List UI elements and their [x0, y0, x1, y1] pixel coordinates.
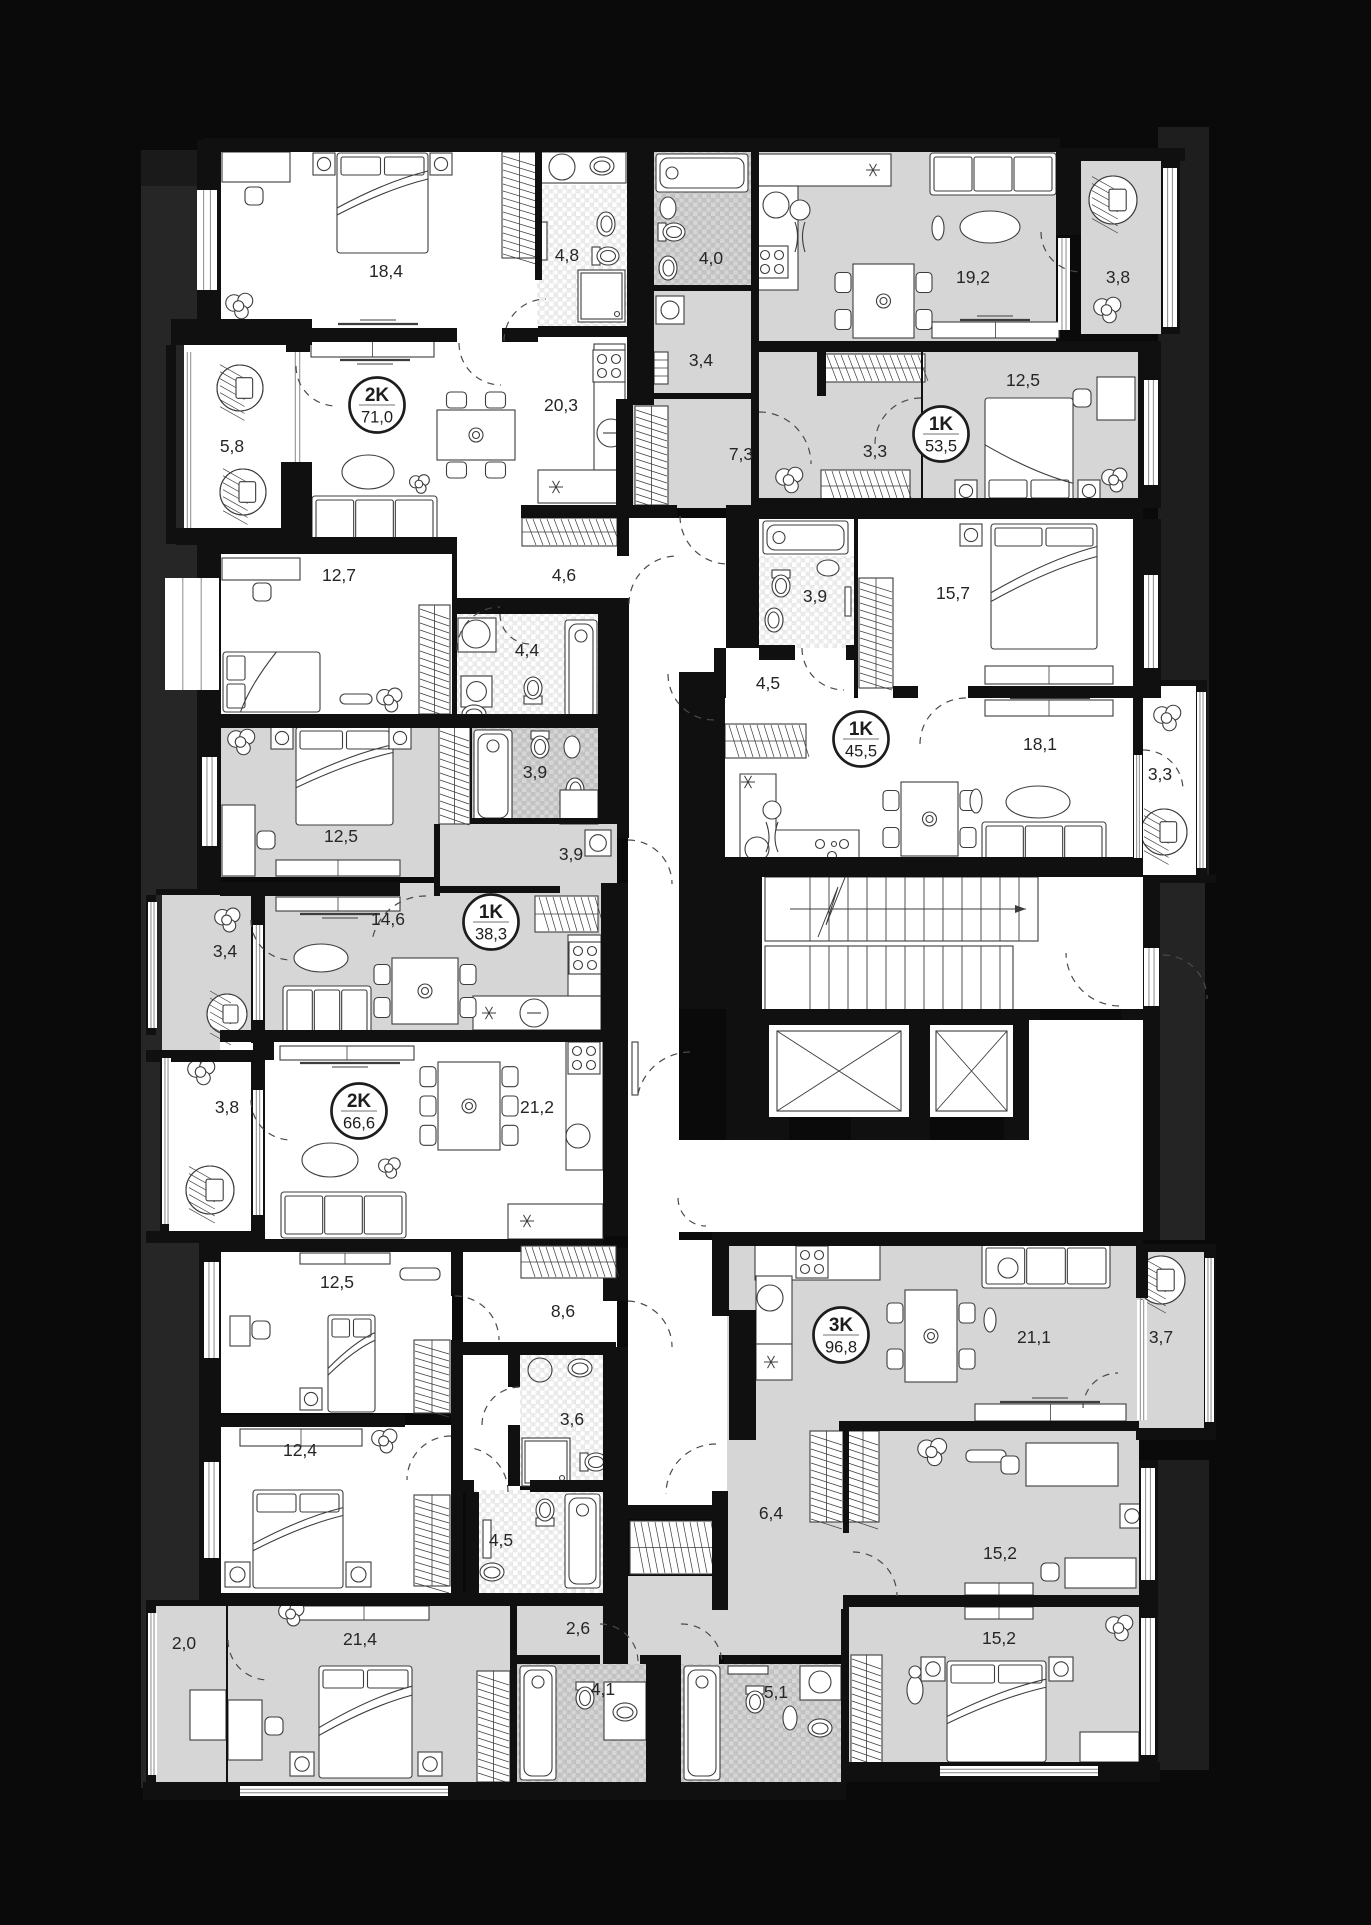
svg-text:3,4: 3,4 — [689, 350, 714, 370]
svg-text:4,6: 4,6 — [552, 565, 576, 585]
svg-text:15,2: 15,2 — [982, 1628, 1016, 1648]
svg-text:3,3: 3,3 — [863, 441, 887, 461]
svg-text:21,4: 21,4 — [343, 1629, 377, 1649]
svg-text:15,2: 15,2 — [983, 1543, 1017, 1563]
svg-text:4,5: 4,5 — [756, 673, 780, 693]
svg-text:1K: 1K — [849, 719, 874, 740]
svg-text:12,7: 12,7 — [322, 565, 356, 585]
svg-text:2,0: 2,0 — [172, 1633, 197, 1653]
svg-text:1K: 1K — [929, 414, 954, 435]
svg-text:18,4: 18,4 — [369, 261, 403, 281]
svg-text:2K: 2K — [347, 1091, 372, 1112]
svg-text:2K: 2K — [365, 385, 390, 406]
svg-text:7,3: 7,3 — [729, 444, 753, 464]
svg-text:19,2: 19,2 — [956, 267, 990, 287]
svg-text:3,8: 3,8 — [1106, 267, 1130, 287]
svg-text:3,6: 3,6 — [560, 1409, 584, 1429]
svg-text:4,4: 4,4 — [515, 640, 540, 660]
svg-text:1K: 1K — [479, 902, 504, 923]
svg-text:53,5: 53,5 — [925, 438, 957, 456]
svg-text:66,6: 66,6 — [343, 1115, 375, 1133]
svg-text:5,8: 5,8 — [220, 436, 244, 456]
svg-text:96,8: 96,8 — [825, 1339, 857, 1357]
svg-text:12,5: 12,5 — [324, 826, 358, 846]
svg-text:71,0: 71,0 — [361, 409, 393, 427]
svg-text:4,0: 4,0 — [699, 248, 724, 268]
svg-text:21,2: 21,2 — [520, 1097, 554, 1117]
svg-text:6,4: 6,4 — [759, 1503, 784, 1523]
svg-text:12,5: 12,5 — [320, 1272, 354, 1292]
svg-text:4,5: 4,5 — [489, 1530, 513, 1550]
svg-text:3,9: 3,9 — [523, 762, 547, 782]
svg-text:3,3: 3,3 — [1148, 764, 1172, 784]
svg-text:14,6: 14,6 — [371, 909, 405, 929]
svg-text:3,7: 3,7 — [1149, 1327, 1173, 1347]
svg-text:45,5: 45,5 — [845, 743, 877, 761]
svg-text:4,8: 4,8 — [555, 245, 579, 265]
svg-text:5,1: 5,1 — [764, 1682, 788, 1702]
svg-text:3,9: 3,9 — [559, 844, 583, 864]
svg-text:4,1: 4,1 — [591, 1679, 615, 1699]
svg-text:12,4: 12,4 — [283, 1440, 317, 1460]
svg-text:3,8: 3,8 — [215, 1097, 239, 1117]
svg-text:2,6: 2,6 — [566, 1618, 590, 1638]
svg-text:21,1: 21,1 — [1017, 1327, 1051, 1347]
svg-text:15,7: 15,7 — [936, 583, 970, 603]
svg-text:38,3: 38,3 — [475, 926, 507, 944]
svg-text:3,4: 3,4 — [213, 941, 238, 961]
svg-text:20,3: 20,3 — [544, 395, 578, 415]
svg-text:8,6: 8,6 — [551, 1301, 575, 1321]
svg-text:3K: 3K — [829, 1315, 854, 1336]
svg-text:3,9: 3,9 — [803, 586, 827, 606]
svg-text:12,5: 12,5 — [1006, 370, 1040, 390]
svg-text:18,1: 18,1 — [1023, 734, 1057, 754]
